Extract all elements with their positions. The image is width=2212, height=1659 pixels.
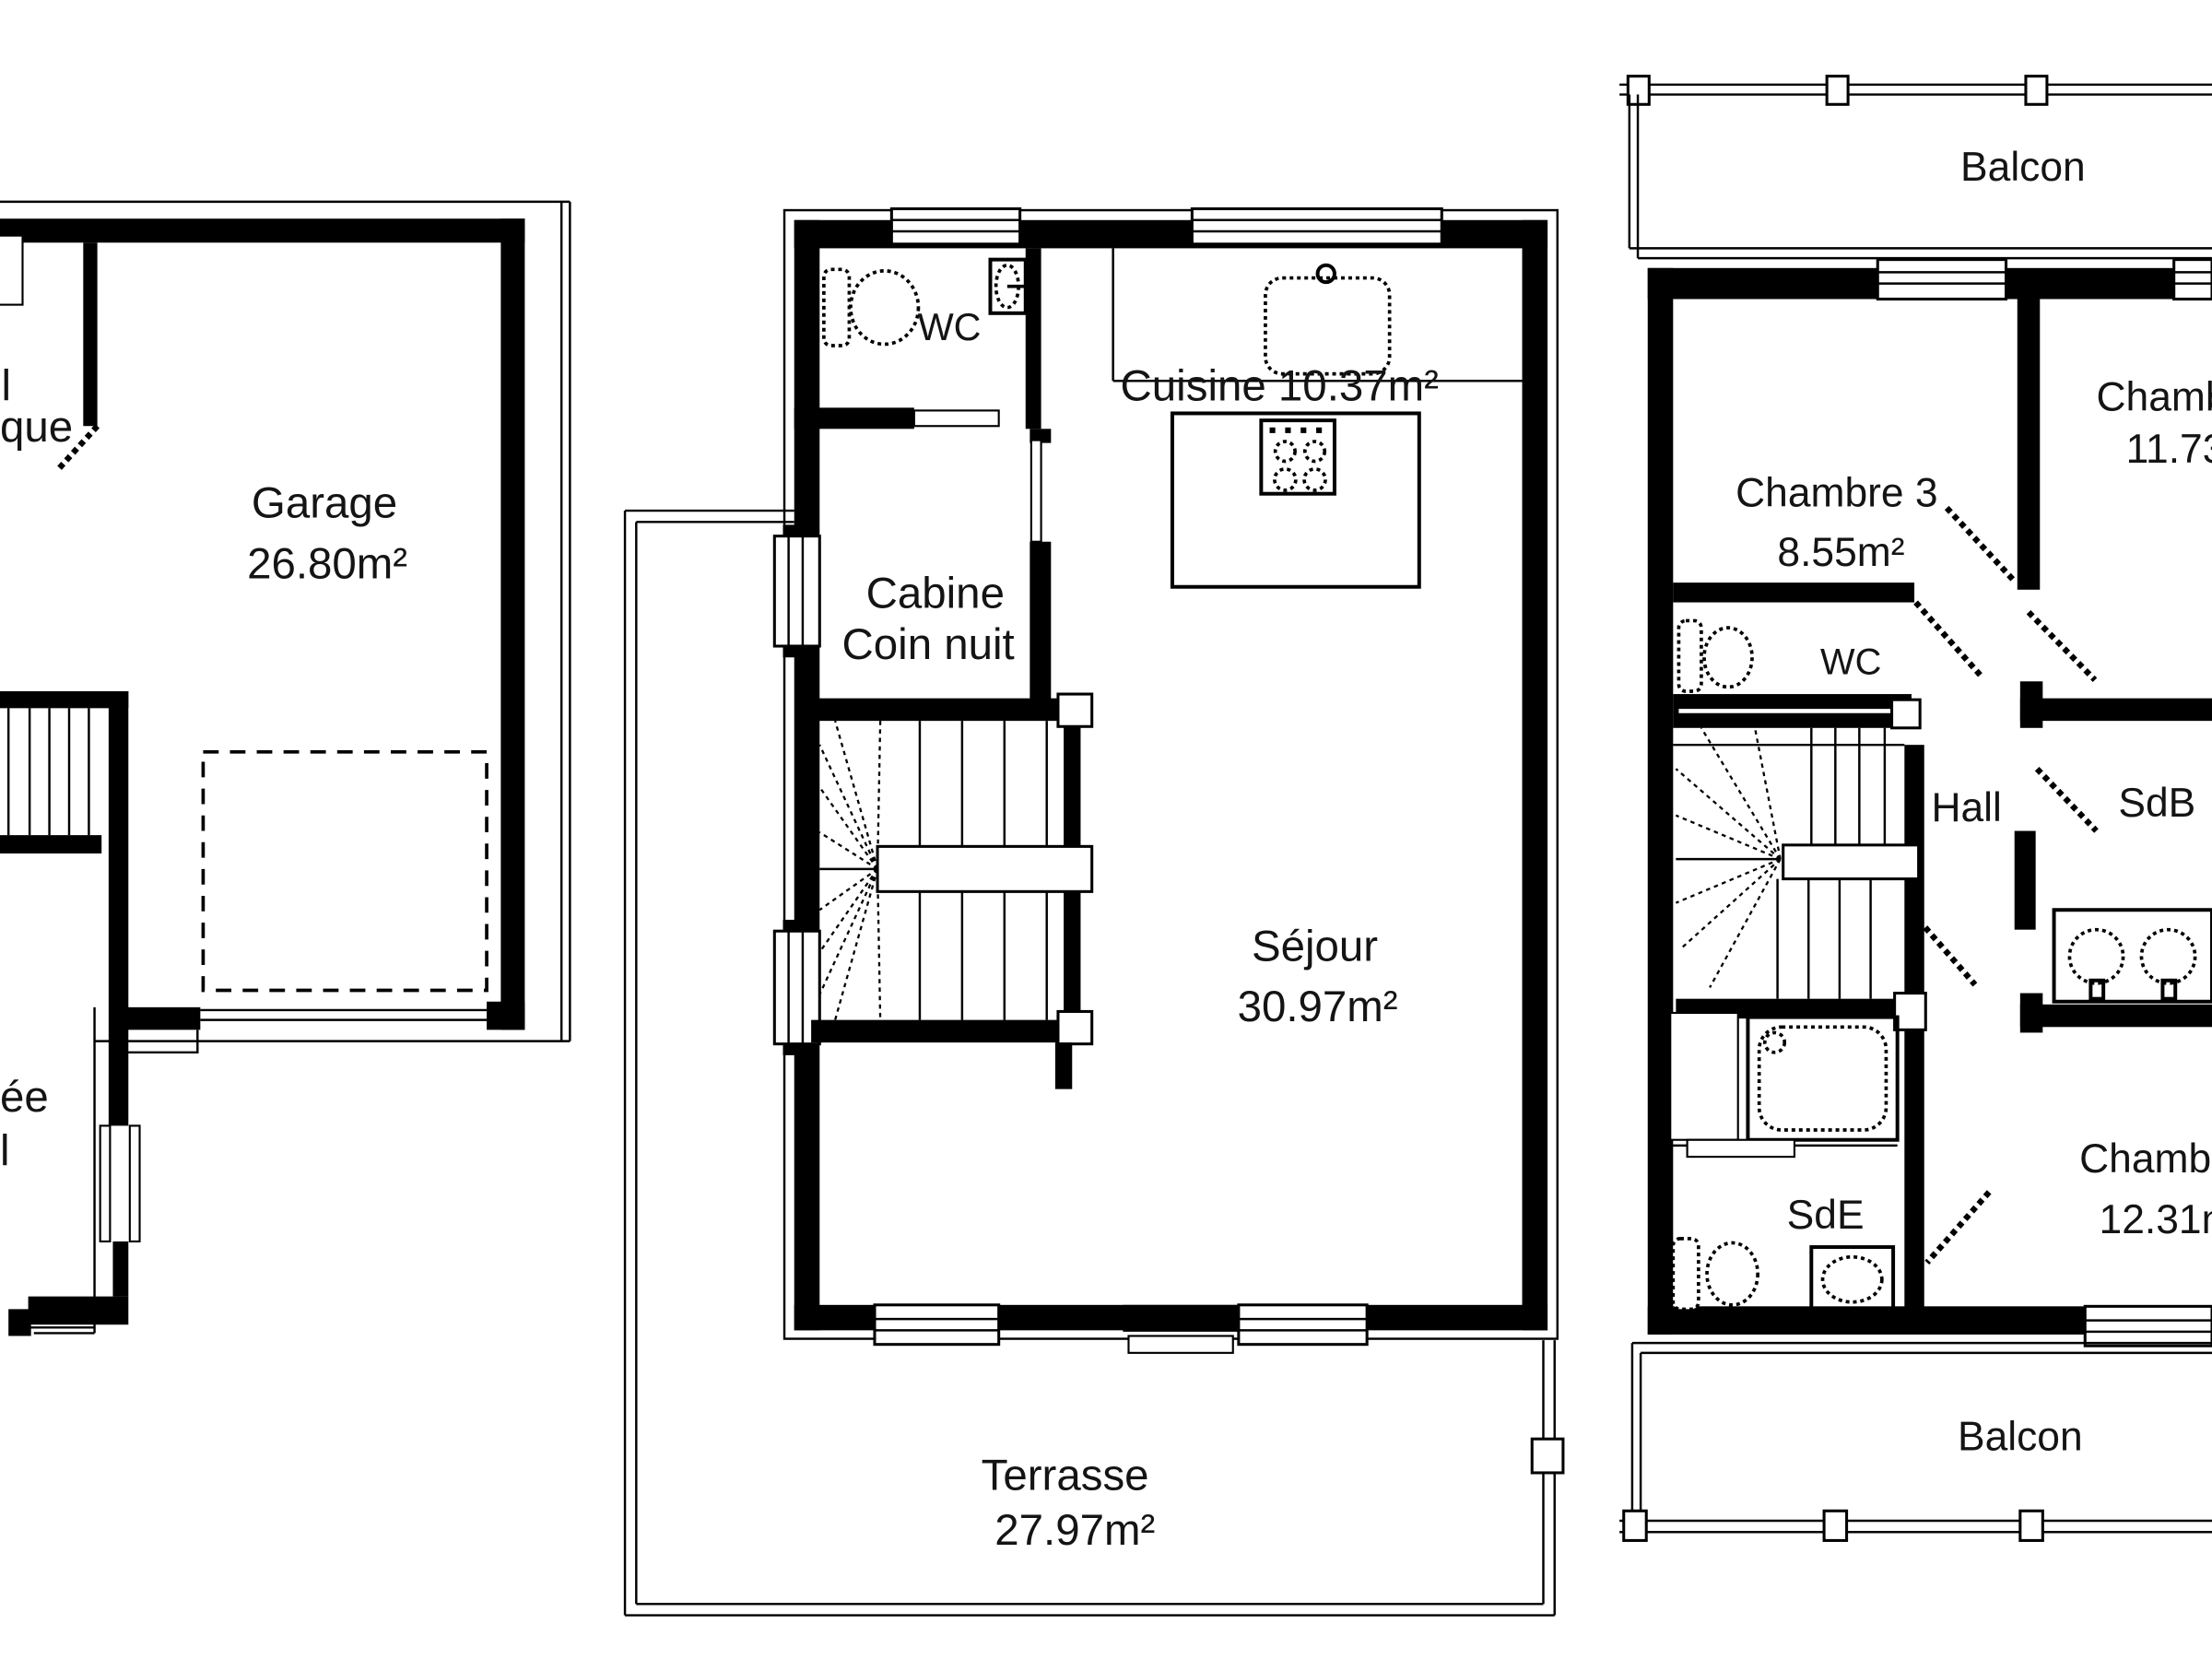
cuisine-label: Cuisine 10.37m² bbox=[1121, 362, 1439, 411]
sejour-label: Séjour bbox=[1252, 922, 1378, 971]
toilet-symbol bbox=[1678, 620, 1752, 691]
closet bbox=[1670, 1013, 1737, 1140]
balustrade-post bbox=[1827, 76, 1848, 105]
closet bbox=[0, 236, 22, 305]
labels: Balcon Chambre 3 8.55m² Chamb 11.73 WC S… bbox=[1735, 145, 2212, 1460]
shower-symbol bbox=[1747, 1018, 1897, 1140]
balcony-top bbox=[1619, 76, 2212, 258]
floorplan-canvas: l que Garage 26.80m² ée l bbox=[0, 0, 2212, 1659]
hall-label: Hall bbox=[1931, 785, 2001, 830]
stair-landing bbox=[1783, 845, 1919, 879]
washbasin-symbol bbox=[1811, 1247, 1893, 1312]
terrace-post bbox=[1532, 1439, 1563, 1473]
window bbox=[891, 209, 1019, 244]
garage-door-opening bbox=[200, 1010, 489, 1020]
balustrade-post bbox=[1824, 1511, 1846, 1540]
balcony-bottom bbox=[1619, 1343, 2212, 1540]
window bbox=[2174, 260, 2212, 300]
walls bbox=[0, 218, 524, 1335]
terrasse-area: 27.97m² bbox=[994, 1506, 1155, 1555]
window bbox=[875, 1305, 999, 1345]
open-door-leaf bbox=[1031, 441, 1041, 542]
island-cooktop-symbol bbox=[1172, 413, 1419, 586]
sde-label: SdE bbox=[1787, 1193, 1865, 1238]
balcon-label: Balcon bbox=[1958, 1414, 2083, 1459]
chambre1-area-clipped: 12.31m bbox=[2100, 1197, 2212, 1242]
cabine-label: Coin nuit bbox=[842, 620, 1015, 669]
terrace-outline bbox=[625, 511, 1563, 1615]
sliding-door bbox=[1123, 1305, 1239, 1353]
balcon-label: Balcon bbox=[1960, 145, 2086, 190]
entry-door-sidelight bbox=[100, 1125, 140, 1241]
labels: WC Cuisine 10.37m² Cabine Coin nuit Séjo… bbox=[842, 306, 1439, 1555]
staircase bbox=[8, 708, 88, 835]
toilet-symbol bbox=[1673, 1239, 1758, 1310]
newel-post bbox=[1058, 694, 1092, 726]
kitchen bbox=[1113, 248, 1523, 586]
garage-label: Garage bbox=[252, 479, 397, 528]
cabine-room bbox=[1030, 429, 1051, 700]
toilet-symbol bbox=[824, 269, 919, 346]
balustrade-post bbox=[1624, 1511, 1646, 1540]
sink-symbol bbox=[990, 260, 1025, 313]
parking-space-dashed bbox=[203, 752, 487, 991]
room-label-clipped: l bbox=[0, 1126, 10, 1175]
chambre1-label-clipped: Chambr bbox=[2079, 1136, 2212, 1182]
bath-mat bbox=[1688, 1140, 1794, 1157]
window bbox=[774, 524, 819, 657]
door-swings bbox=[1916, 508, 2097, 1263]
window bbox=[1192, 209, 1441, 244]
balustrade-post bbox=[2020, 1511, 2042, 1540]
wc-label: WC bbox=[918, 306, 982, 348]
chambre3-label: Chambre 3 bbox=[1735, 470, 1938, 515]
chambre2-label-clipped: Chamb bbox=[2096, 374, 2212, 419]
window bbox=[1239, 1305, 1367, 1345]
stair-landing bbox=[877, 846, 1092, 891]
sejour-area: 30.97m² bbox=[1238, 982, 1398, 1031]
window bbox=[1877, 260, 2006, 300]
kitchen-sink-symbol bbox=[1265, 265, 1390, 374]
wc-room bbox=[1678, 620, 1752, 691]
balustrade-post bbox=[2026, 76, 2047, 105]
plan-garage-level: l que Garage 26.80m² ée l bbox=[0, 202, 570, 1336]
window bbox=[2085, 1306, 2212, 1346]
staircase bbox=[1676, 700, 1925, 1030]
plan-bedroom-level: Balcon Chambre 3 8.55m² Chamb 11.73 WC S… bbox=[1619, 76, 2212, 1541]
garage-area: 26.80m² bbox=[247, 540, 407, 589]
sde-room bbox=[1670, 1013, 1897, 1312]
newel-post bbox=[1892, 700, 1921, 728]
wc-label: WC bbox=[1820, 642, 1881, 683]
sdb-room bbox=[2054, 910, 2212, 1001]
room-label-clipped: que bbox=[0, 403, 73, 452]
vanity-double-sink-symbol bbox=[2054, 910, 2212, 1001]
staircase bbox=[811, 694, 1092, 1089]
room-label-clipped: ée bbox=[0, 1073, 49, 1122]
plan-living-level: WC Cuisine 10.37m² Cabine Coin nuit Séjo… bbox=[625, 209, 1563, 1616]
newel-post bbox=[1058, 1011, 1092, 1043]
pocket-door bbox=[914, 410, 999, 426]
chambre3-area: 8.55m² bbox=[1777, 530, 1904, 575]
chambre2-area-clipped: 11.73 bbox=[2126, 427, 2212, 472]
terrasse-label: Terrasse bbox=[982, 1451, 1149, 1500]
cabine-label: Cabine bbox=[866, 570, 1005, 618]
sdb-label: SdB bbox=[2118, 781, 2195, 826]
newel-post bbox=[1895, 994, 1926, 1030]
